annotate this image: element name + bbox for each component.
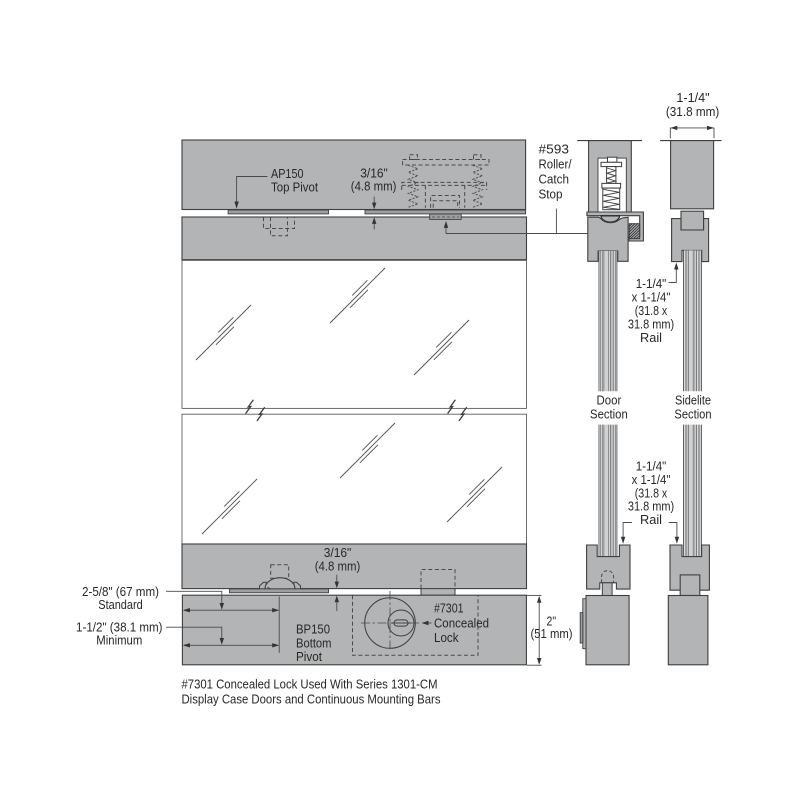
svg-text:Concealed: Concealed [434,616,489,631]
svg-text:Roller/: Roller/ [539,157,572,172]
svg-text:Rail: Rail [640,330,662,345]
svg-text:Minimum: Minimum [96,633,142,648]
svg-text:Section: Section [590,406,628,421]
svg-text:Lock: Lock [434,630,459,645]
svg-text:Sidelite: Sidelite [675,393,711,408]
svg-text:BP150: BP150 [296,622,330,637]
svg-text:(4.8 mm): (4.8 mm) [315,559,361,574]
svg-text:#593: #593 [539,142,570,157]
svg-text:Bottom: Bottom [296,635,332,650]
svg-text:Standard: Standard [98,597,143,612]
svg-text:1-1/4": 1-1/4" [676,90,710,105]
svg-text:Rail: Rail [640,512,662,527]
svg-text:Section: Section [674,406,711,421]
svg-text:Top Pivot: Top Pivot [271,180,318,195]
svg-text:Pivot: Pivot [296,649,322,664]
svg-text:(51 mm): (51 mm) [531,626,573,641]
svg-text:Display Case Doors and Continu: Display Case Doors and Continuous Mounti… [182,692,441,707]
svg-text:#7301 Concealed Lock Used With: #7301 Concealed Lock Used With Series 13… [182,677,438,692]
svg-text:#7301: #7301 [434,601,464,616]
svg-text:Door: Door [597,393,622,408]
svg-text:Catch: Catch [539,172,570,187]
svg-text:Stop: Stop [539,187,563,202]
svg-text:(4.8 mm): (4.8 mm) [351,179,397,194]
svg-text:(31.8 mm): (31.8 mm) [666,104,719,119]
